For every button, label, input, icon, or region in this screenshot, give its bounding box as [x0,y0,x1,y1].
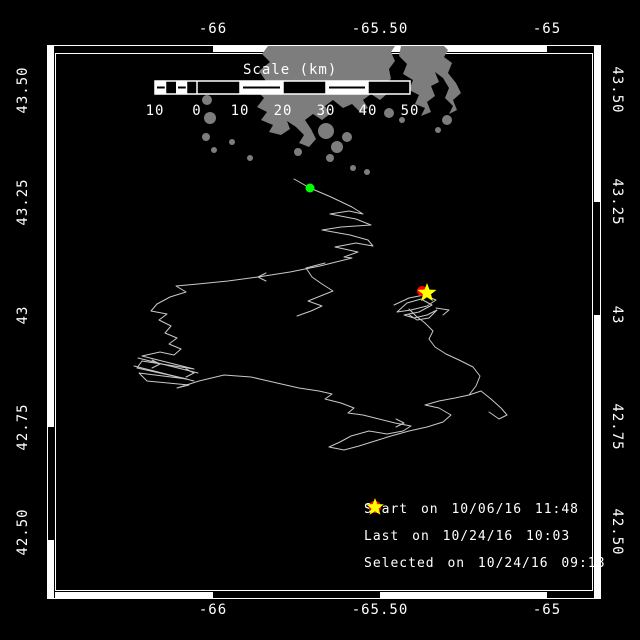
axis-label-left-lat-4: 42.75 [15,387,31,467]
frame-thick-bottom-right [380,592,547,598]
legend-label-last: Last on 10/24/16 10:03 [364,529,570,544]
axis-label-right-lat-2: 43.25 [609,162,625,242]
legend-item-last: Last on 10/24/16 10:03 [364,523,606,550]
track-map-window: -66 -65.50 -65 -66 -65.50 -65 43.50 43.2… [0,0,640,640]
selected-marker[interactable] [418,283,437,301]
axis-label-right-lat-4: 42.75 [609,387,625,467]
frame-thick-right-upper [594,46,600,202]
legend-item-selected: Selected on 10/24/16 09:18 [364,550,606,577]
legend: Start on 10/06/16 11:48 Last on 10/24/16… [364,496,606,577]
scale-tick-50: 50 [390,103,430,119]
scale-bar [155,81,410,94]
axis-label-top-lon-2: -65.50 [340,21,420,37]
scale-tick-10: 10 [220,103,260,119]
scale-tick-0: 0 [177,103,217,119]
axis-label-top-lon-3: -65 [507,21,587,37]
legend-label-start: Start on 10/06/16 11:48 [364,502,579,517]
axis-label-bottom-lon-1: -66 [173,602,253,618]
axis-label-right-lat-1: 43.50 [609,50,625,130]
scale-tick-20: 20 [263,103,303,119]
axis-label-left-lat-1: 43.50 [15,50,31,130]
axis-label-bottom-lon-3: -65 [507,602,587,618]
frame-thick-left-upper [48,46,54,427]
legend-item-start: Start on 10/06/16 11:48 [364,496,606,523]
axis-label-left-lat-3: 43 [15,275,31,355]
axis-label-left-lat-2: 43.25 [15,162,31,242]
legend-label-selected: Selected on 10/24/16 09:18 [364,556,606,571]
axis-label-bottom-lon-2: -65.50 [340,602,420,618]
selected-star-icon [364,496,386,518]
scale-tick-30: 30 [306,103,346,119]
axis-label-right-lat-5: 42.50 [609,492,625,572]
scale-bar-title: Scale (km) [243,62,337,78]
axis-label-right-lat-3: 43 [609,275,625,355]
scale-tick-10L: 10 [135,103,175,119]
track-path [134,179,507,450]
axis-label-left-lat-5: 42.50 [15,492,31,572]
start-marker[interactable] [306,184,315,193]
frame-thick-bottom-left [55,592,213,598]
frame-thick-left-lower [48,540,54,598]
scale-tick-40: 40 [348,103,388,119]
axis-label-top-lon-1: -66 [173,21,253,37]
